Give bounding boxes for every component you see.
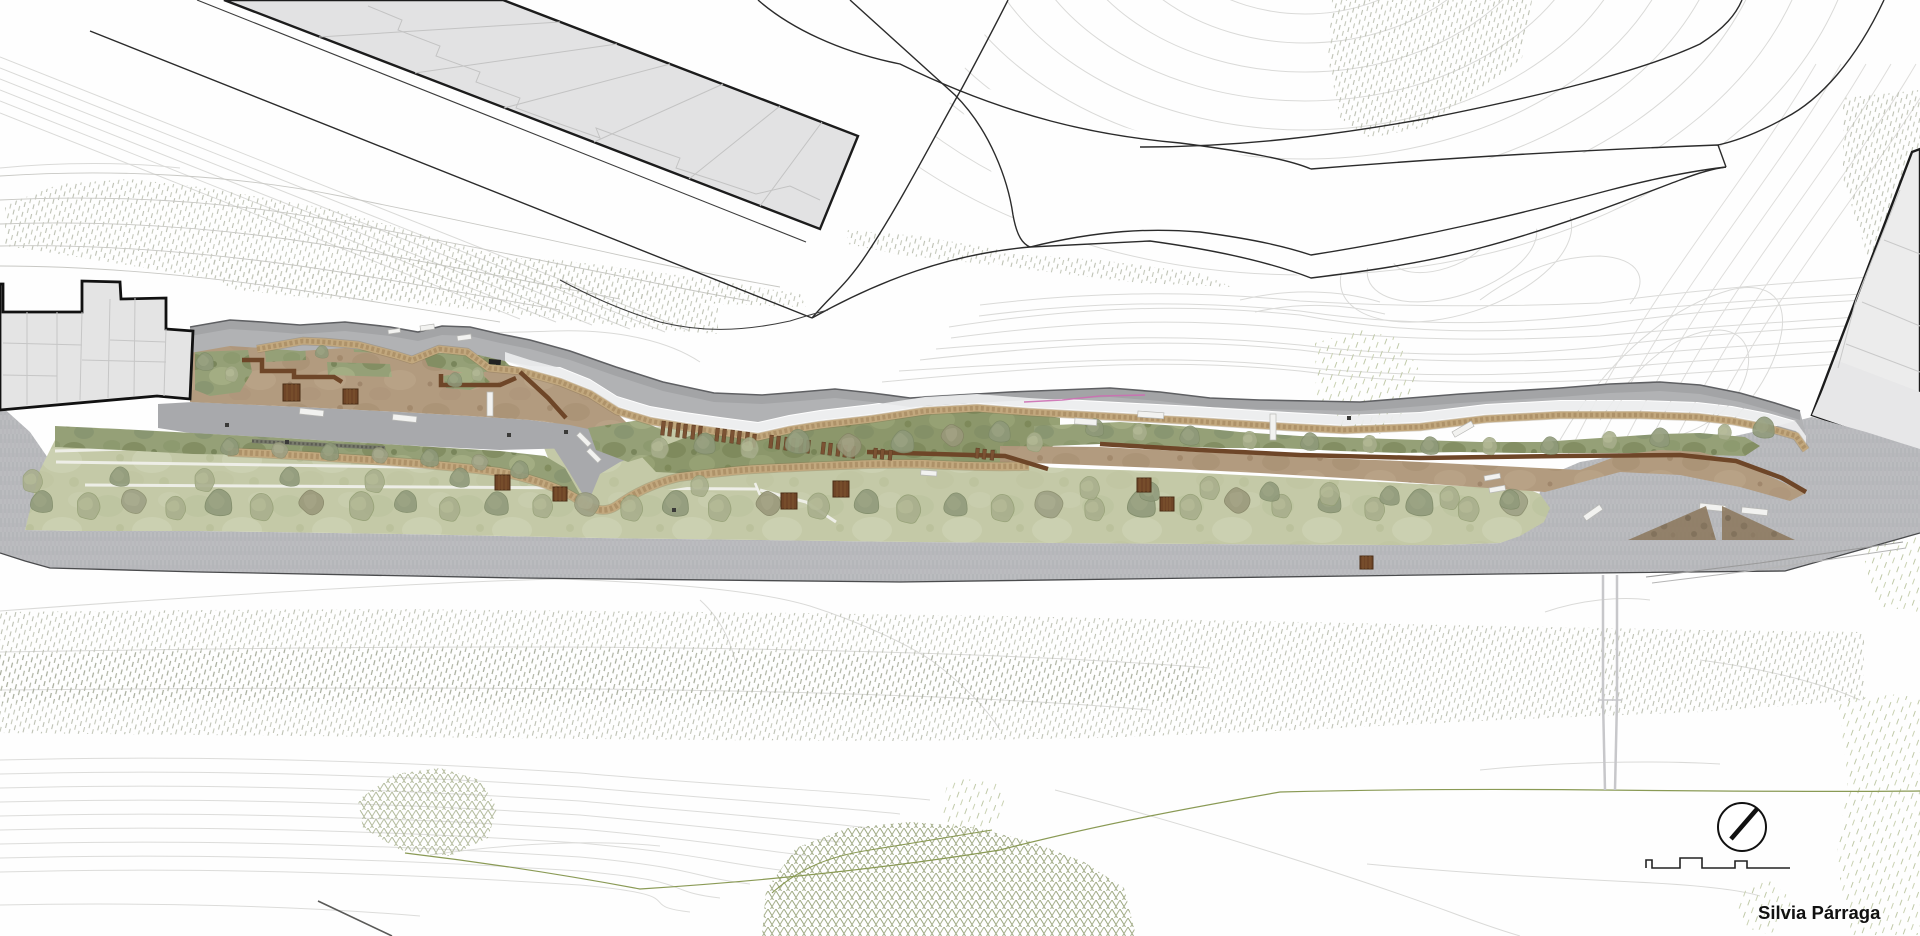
svg-text:Silvia Párraga: Silvia Párraga	[1758, 902, 1881, 923]
